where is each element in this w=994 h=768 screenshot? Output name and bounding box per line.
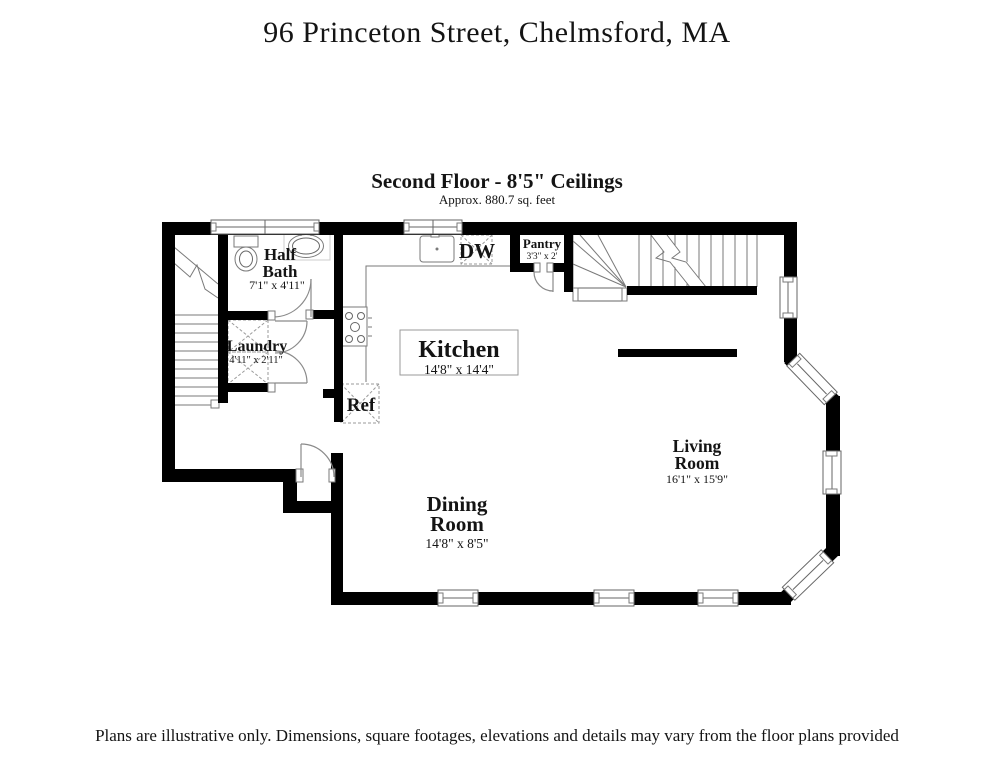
dining-label-2: Room — [430, 512, 484, 536]
laundry-label: Laundry — [227, 338, 287, 355]
window-bay-ne — [787, 353, 837, 404]
window-half-bath — [211, 220, 319, 234]
stair-newel — [211, 400, 219, 408]
window-dining-3 — [698, 590, 738, 606]
stair-half-wall — [573, 288, 627, 301]
laundry-dims: 4'11" x 2'11" — [229, 355, 283, 366]
pantry-label: Pantry — [523, 236, 562, 251]
living-dims: 16'1" x 15'9" — [666, 472, 728, 486]
window-dining-1 — [438, 590, 478, 606]
window-dining-2 — [594, 590, 634, 606]
floorplan-svg: Half Bath 7'1" x 4'11" Laundry 4'11" x 2… — [0, 0, 994, 768]
dishwasher-label: DW — [459, 239, 495, 263]
stairs-lower-left — [174, 247, 219, 408]
living-label-2: Room — [675, 453, 720, 473]
window-living-right-upper — [780, 277, 797, 318]
kitchen-sink-icon — [420, 232, 454, 262]
living-half-wall — [618, 349, 737, 357]
stove-icon — [342, 307, 372, 346]
window-living-right-lower — [823, 451, 841, 494]
kitchen-dims: 14'8" x 14'4" — [424, 362, 494, 377]
stair-break — [651, 235, 706, 287]
window-bay-se — [782, 550, 833, 600]
disclaimer-text: Plans are illustrative only. Dimensions,… — [0, 726, 994, 746]
dining-dims: 14'8" x 8'5" — [425, 536, 488, 551]
toilet-icon — [234, 236, 258, 271]
door-pantry — [534, 263, 553, 292]
refrigerator-label: Ref — [347, 395, 376, 416]
stair-rail — [627, 286, 757, 295]
pantry-dims: 3'3" x 2' — [526, 252, 557, 262]
door-hall — [296, 444, 335, 482]
half-bath-dims: 7'1" x 4'11" — [249, 278, 305, 292]
window-kitchen — [404, 220, 462, 234]
kitchen-label: Kitchen — [418, 337, 499, 363]
